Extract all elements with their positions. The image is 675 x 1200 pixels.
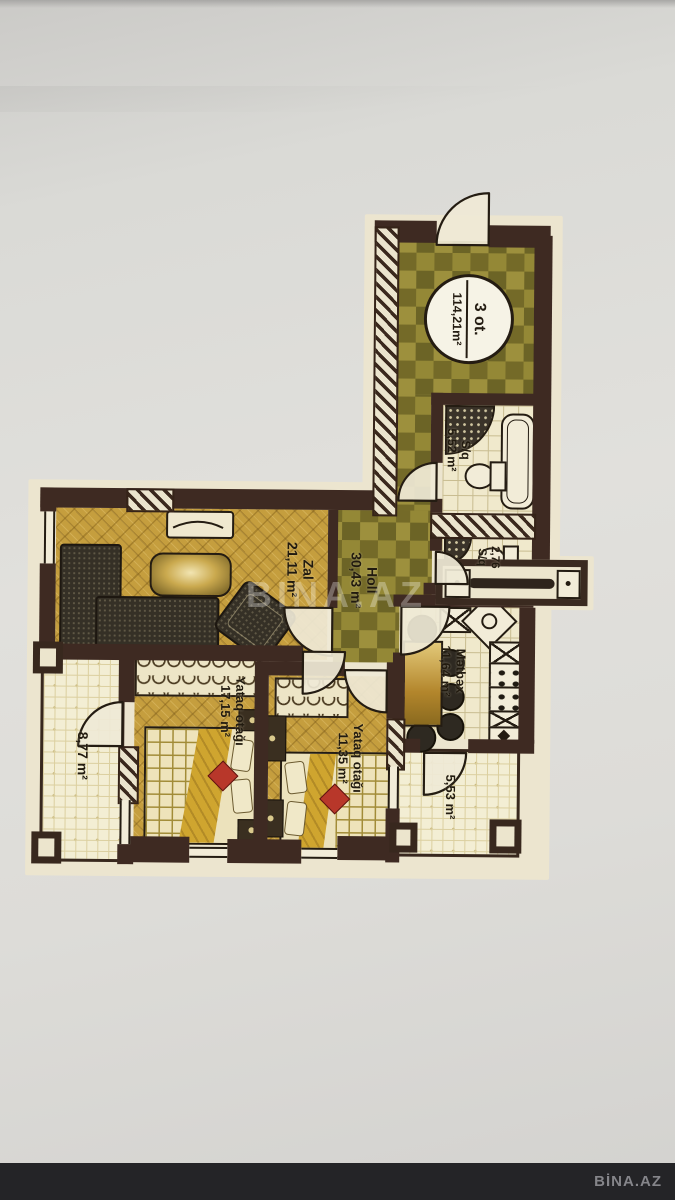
- bedroom2-area: 11,35 m²: [335, 723, 350, 792]
- bottom-window-1: [189, 847, 227, 858]
- kitchen-sink-basin: [478, 610, 501, 633]
- hall-closet: [435, 559, 587, 606]
- closet-cabinet-right: [556, 570, 580, 599]
- kitchen-area: 11,64 m²: [438, 645, 453, 696]
- bedroom2-right-shaft: [386, 718, 405, 770]
- room-label-balcony-right: 5,53 m²: [442, 774, 457, 819]
- bottom-pier-2: [227, 839, 301, 864]
- bathroom-name: S/q: [459, 428, 473, 471]
- balcony-right-post-left: [389, 822, 417, 852]
- bedroom1-left-shaft: [118, 746, 140, 804]
- heater-icon: [166, 510, 234, 539]
- kitchen-name: Mətbəx: [453, 645, 468, 696]
- kitchen-bottom-wall-b: [468, 739, 534, 754]
- center-watermark: BINA.AZ: [246, 574, 427, 616]
- room-label-bathroom: S/q 5,52 m²: [445, 428, 473, 471]
- main-top-wall: [40, 487, 380, 510]
- room-label-bedroom2: Yataq otağı 11,35 m²: [335, 723, 365, 793]
- bath-wc-shaft: [430, 513, 536, 540]
- unit-badge: 3 ot. 114,21m²: [424, 274, 515, 365]
- bedroom1-name: Yataq otağı: [232, 676, 247, 745]
- entry-left-shaft-wall: [372, 226, 400, 516]
- bedrooms-divider-wall: [253, 661, 269, 847]
- bathroom-left-wall-b: [430, 499, 442, 513]
- wc-area: 2,76: [488, 546, 501, 569]
- balcony-left-post-top: [33, 641, 63, 673]
- bedroom1-area: 17,15 m²: [218, 676, 233, 745]
- room-label-kitchen: Mətbəx 11,64 m²: [438, 645, 468, 697]
- bedroom2-right-window: [388, 766, 399, 808]
- kitchen-right-wall: [518, 608, 535, 744]
- zal-left-wall-top: [40, 487, 56, 511]
- closet-cabinet-left: [444, 569, 470, 598]
- heater-arc: [168, 513, 228, 534]
- bed2-pillow-2: [284, 801, 308, 837]
- balcony-left-post-bottom: [31, 831, 61, 863]
- closet-knob-left: [455, 580, 460, 585]
- bedroom2-wardrobe-icon: [274, 677, 348, 718]
- room-label-balcony-left: 8,77 m²: [74, 732, 90, 780]
- main-top-wall-shaft: [126, 488, 174, 512]
- toilet-tank-icon: [489, 461, 506, 491]
- bedroom2-top-wall-a: [257, 661, 345, 676]
- bathtub-inner: [506, 419, 529, 503]
- coffee-table-icon: [150, 552, 232, 597]
- room-label-wc: 2,76 S/q: [475, 546, 501, 569]
- bedroom2-name: Yataq otağı: [350, 723, 365, 792]
- unit-total-area: 114,21m²: [450, 293, 466, 346]
- bed1-pillow-2: [230, 778, 253, 814]
- bed2-pillow-1: [284, 760, 308, 794]
- bathroom-left-wall-a: [431, 393, 444, 463]
- unit-rooms-count: 3 ot.: [466, 280, 489, 359]
- balcony-right-post-right: [489, 819, 521, 853]
- wc-name: S/q: [475, 546, 488, 569]
- bottom-window-2: [301, 848, 337, 859]
- closet-knob-right: [566, 581, 571, 586]
- balcony-right-area: 5,53 m²: [442, 774, 457, 819]
- closet-rail: [469, 578, 555, 589]
- bathroom-area: 5,52 m²: [445, 428, 459, 471]
- zal-left-window: [44, 511, 55, 563]
- photo-canvas: 3 ot. 114,21m² S/q 5,52 m² 2,76 S/q Holl…: [0, 0, 675, 1200]
- dining-table-icon: [402, 641, 443, 727]
- sofa-bottom-icon: [95, 596, 219, 651]
- bedroom1-top-wall: [127, 644, 303, 662]
- bathroom-top-wall: [431, 393, 535, 406]
- bedroom1-left-window: [119, 800, 130, 844]
- brand-watermark: BİNA.AZ: [594, 1173, 675, 1190]
- balcony-left-area: 8,77 m²: [74, 732, 90, 780]
- room-label-bedroom1: Yataq otağı 17,15 m²: [218, 676, 248, 746]
- bottom-pier-3: [337, 836, 391, 860]
- bedroom1-left-wall-a: [119, 658, 135, 702]
- footer-band: BİNA.AZ: [0, 1163, 675, 1200]
